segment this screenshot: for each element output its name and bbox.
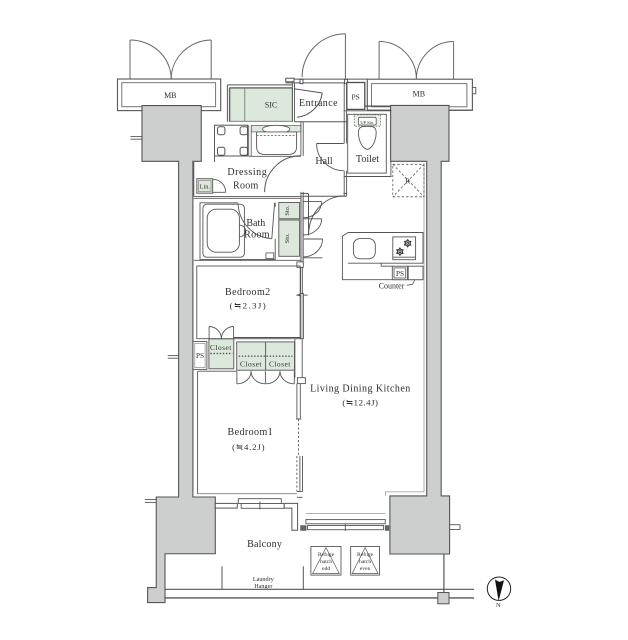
svg-text:hatch: hatch [320,559,332,565]
svg-text:even: even [360,566,371,572]
svg-text:Refuge: Refuge [357,551,374,558]
svg-text:N: N [496,602,501,609]
svg-text:PS: PS [396,269,404,278]
svg-text:SIC: SIC [265,100,277,109]
svg-text:MB: MB [164,91,176,100]
svg-text:Closet: Closet [240,360,262,369]
svg-text:odd: odd [322,566,331,572]
svg-text:Room: Room [244,230,270,241]
svg-text:Bedroom1: Bedroom1 [228,427,274,438]
svg-text:PS: PS [352,93,360,102]
svg-text:Dressing: Dressing [227,167,267,178]
svg-text:Refuge: Refuge [318,551,335,558]
svg-text:Closet: Closet [269,360,291,369]
svg-text:Closet: Closet [210,343,232,352]
svg-text:Laundry: Laundry [253,576,275,583]
svg-text:Toilet: Toilet [356,154,379,165]
svg-text:Sto.: Sto. [284,205,291,215]
svg-text:MB: MB [413,90,425,99]
svg-text:Bath: Bath [246,218,265,229]
svg-text:hatch: hatch [359,559,371,565]
svg-text:Sto.: Sto. [284,233,291,243]
svg-text:Lin.: Lin. [200,184,211,191]
svg-text:R: R [405,177,410,186]
svg-text:Living Dining Kitchen: Living Dining Kitchen [310,383,411,394]
svg-text:Balcony: Balcony [247,539,282,550]
svg-text:(≒4.2J): (≒4.2J) [232,442,265,452]
svg-text:Bedroom2: Bedroom2 [225,287,271,298]
svg-text:PS: PS [196,351,204,360]
svg-text:Counter: Counter [379,282,405,291]
svg-text:Hall: Hall [315,156,332,167]
svg-text:Room: Room [233,181,259,192]
svg-text:UP Sto.: UP Sto. [360,120,374,125]
svg-text:(≒2.3J): (≒2.3J) [230,300,267,310]
svg-text:(≒12.4J): (≒12.4J) [342,397,378,407]
